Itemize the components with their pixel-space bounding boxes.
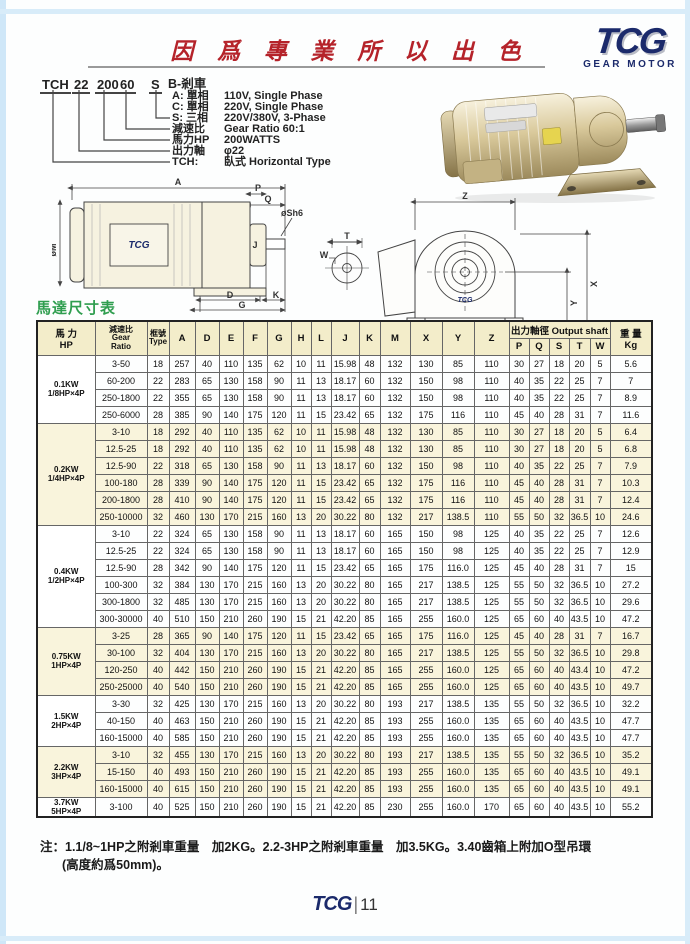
dim-value-cell: 215: [243, 746, 267, 763]
gear-ratio-cell: 40-150: [95, 712, 147, 729]
page-frame-right: [685, 0, 690, 944]
dim-value-cell: 43.4: [569, 661, 590, 678]
hp-group-cell: 0.75KW1HP×4P: [37, 627, 95, 695]
dim-value-cell: 32: [147, 576, 169, 593]
dim-value-cell: 21: [311, 729, 331, 746]
dim-value-cell: 7: [590, 474, 610, 491]
dim-value-cell: 47.7: [610, 729, 652, 746]
dim-value-cell: 60: [529, 729, 549, 746]
dim-value-cell: 110: [474, 355, 509, 372]
dim-value-cell: 10: [590, 610, 610, 627]
dim-value-cell: 217: [410, 576, 442, 593]
dim-value-cell: 50: [529, 576, 549, 593]
dim-value-cell: 116.0: [442, 627, 474, 644]
dim-value-cell: 90: [195, 559, 219, 576]
dim-value-cell: 130: [219, 525, 243, 542]
dim-value-cell: 190: [267, 678, 291, 695]
dim-value-cell: 10: [590, 508, 610, 525]
brand-logo: TCG GEAR MOTOR: [580, 24, 680, 70]
dim-value-cell: 45: [509, 559, 529, 576]
dim-value-cell: 47.2: [610, 610, 652, 627]
dim-value-cell: 150: [410, 542, 442, 559]
dim-value-cell: 20: [569, 355, 590, 372]
dim-value-cell: 15: [291, 712, 311, 729]
dim-value-cell: 165: [380, 542, 410, 559]
gear-ratio-cell: 160-15000: [95, 780, 147, 797]
dim-value-cell: 80: [359, 576, 380, 593]
dim-value-cell: 10: [590, 576, 610, 593]
dim-value-cell: 22: [147, 389, 169, 406]
dim-value-cell: 11: [291, 474, 311, 491]
dim-value-cell: 20: [569, 423, 590, 440]
dim-value-cell: 22: [147, 542, 169, 559]
dim-value-cell: 158: [243, 525, 267, 542]
dim-value-cell: 160.0: [442, 763, 474, 780]
dim-value-cell: 55: [509, 576, 529, 593]
dim-value-cell: 20: [311, 593, 331, 610]
dim-value-cell: 15: [311, 474, 331, 491]
dim-value-cell: 132: [380, 406, 410, 423]
dim-value-cell: 28: [549, 627, 569, 644]
dim-value-cell: 190: [267, 712, 291, 729]
dim-value-cell: 43.5: [569, 610, 590, 627]
spec-row: 12.5-902834290140175120111523.4265165175…: [37, 559, 652, 576]
dim-value-cell: 20: [311, 576, 331, 593]
dim-value-cell: 170: [219, 644, 243, 661]
dim-value-cell: 40: [529, 406, 549, 423]
dim-value-cell: 132: [380, 355, 410, 372]
dim-value-cell: 29.8: [610, 644, 652, 661]
dim-m-label: øM: [52, 244, 58, 257]
dim-value-cell: 60: [529, 610, 549, 627]
dim-value-cell: 15: [291, 661, 311, 678]
dim-value-cell: 85: [442, 440, 474, 457]
dim-value-cell: 10: [291, 423, 311, 440]
spec-row: 160-1500040585150210260190152142.2085193…: [37, 729, 652, 746]
dim-value-cell: 442: [169, 661, 195, 678]
dim-value-cell: 49.1: [610, 780, 652, 797]
dim-value-cell: 65: [509, 678, 529, 695]
spec-row: 0.4KW1/2HP×4P3-10223246513015890111318.1…: [37, 525, 652, 542]
gear-ratio-cell: 300-1800: [95, 593, 147, 610]
dim-d-label: D: [227, 290, 234, 300]
dim-value-cell: 35: [529, 389, 549, 406]
gear-ratio-cell: 3-25: [95, 627, 147, 644]
dim-value-cell: 7: [590, 491, 610, 508]
dim-value-cell: 132: [380, 423, 410, 440]
dim-value-cell: 175: [243, 491, 267, 508]
dim-value-cell: 130: [195, 695, 219, 712]
col-header-output-shaft: 出力軸徑 Output shaft: [509, 321, 610, 338]
dim-value-cell: 120: [267, 406, 291, 423]
dim-value-cell: 50: [529, 593, 549, 610]
dim-value-cell: 11: [311, 355, 331, 372]
header-slogan: 因 爲 專 業 所 以 出 色: [150, 32, 550, 66]
dim-value-cell: 150: [195, 797, 219, 817]
dim-value-cell: 65: [195, 372, 219, 389]
dim-value-cell: 48: [359, 440, 380, 457]
dim-value-cell: 11: [291, 372, 311, 389]
dim-value-cell: 60: [529, 763, 549, 780]
dim-value-cell: 90: [195, 627, 219, 644]
spec-row: 300-3000040510150210260190152142.2085165…: [37, 610, 652, 627]
dim-value-cell: 455: [169, 746, 195, 763]
col-header-e: E: [219, 321, 243, 355]
spec-row: 30-10032404130170215160132030.2280165217…: [37, 644, 652, 661]
dim-value-cell: 170: [219, 508, 243, 525]
dim-value-cell: 40: [509, 525, 529, 542]
dim-value-cell: 62: [267, 355, 291, 372]
dim-value-cell: 85: [359, 712, 380, 729]
dim-value-cell: 260: [243, 712, 267, 729]
spec-row: 250-1000032460130170215160132030.2280132…: [37, 508, 652, 525]
footnote-line2: (高度約爲50mm)。: [62, 854, 169, 873]
dim-value-cell: 165: [380, 559, 410, 576]
dim-value-cell: 116.0: [442, 559, 474, 576]
dim-value-cell: 40: [549, 763, 569, 780]
dim-value-cell: 85: [359, 610, 380, 627]
dim-value-cell: 31: [569, 474, 590, 491]
dim-value-cell: 132: [380, 389, 410, 406]
dim-value-cell: 110: [474, 491, 509, 508]
dim-value-cell: 140: [219, 474, 243, 491]
dim-j-label: J: [252, 240, 257, 250]
dim-value-cell: 130: [219, 542, 243, 559]
gear-ratio-cell: 100-300: [95, 576, 147, 593]
dim-value-cell: 23.42: [331, 491, 359, 508]
dim-value-cell: 40: [529, 474, 549, 491]
dim-z-label: Z: [462, 191, 468, 201]
dim-value-cell: 28: [147, 474, 169, 491]
dim-value-cell: 30: [509, 355, 529, 372]
dim-value-cell: 43.5: [569, 729, 590, 746]
dim-value-cell: 110: [474, 372, 509, 389]
dim-value-cell: 170: [219, 593, 243, 610]
dim-value-cell: 90: [195, 491, 219, 508]
dim-value-cell: 18: [147, 440, 169, 457]
dim-value-cell: 49.1: [610, 763, 652, 780]
dim-value-cell: 40: [509, 542, 529, 559]
dim-value-cell: 60: [359, 457, 380, 474]
dim-value-cell: 35.2: [610, 746, 652, 763]
dim-value-cell: 32: [147, 695, 169, 712]
dim-value-cell: 60: [529, 678, 549, 695]
dim-value-cell: 50: [529, 644, 549, 661]
front-view-brand: TCG: [458, 297, 473, 304]
dim-value-cell: 48: [359, 423, 380, 440]
dim-value-cell: 28: [549, 491, 569, 508]
dim-value-cell: 15.98: [331, 440, 359, 457]
dim-value-cell: 110: [474, 474, 509, 491]
dim-value-cell: 55: [509, 508, 529, 525]
dim-value-cell: 5: [590, 423, 610, 440]
dim-value-cell: 135: [474, 729, 509, 746]
spec-row: 40-15040463150210260190152142.2085193255…: [37, 712, 652, 729]
dim-value-cell: 160: [267, 593, 291, 610]
dim-value-cell: 138.5: [442, 644, 474, 661]
spec-row: 3.7KW5HP×4P3-10040525150210260190152142.…: [37, 797, 652, 817]
dim-value-cell: 10: [590, 763, 610, 780]
dim-value-cell: 42.20: [331, 797, 359, 817]
dim-value-cell: 98: [442, 372, 474, 389]
dim-value-cell: 25: [569, 542, 590, 559]
dim-y-label: Y: [569, 300, 579, 306]
dim-value-cell: 10: [291, 440, 311, 457]
dim-value-cell: 160.0: [442, 661, 474, 678]
dim-value-cell: 11: [291, 627, 311, 644]
dim-value-cell: 25: [569, 372, 590, 389]
hp-group-cell: 0.1KW1/8HP×4P: [37, 355, 95, 423]
page-footer: TCG|11: [0, 893, 690, 916]
dim-value-cell: 160: [267, 746, 291, 763]
dim-value-cell: 30.22: [331, 576, 359, 593]
dim-value-cell: 40: [549, 610, 569, 627]
dim-value-cell: 175: [410, 474, 442, 491]
dim-value-cell: 15: [311, 406, 331, 423]
dim-value-cell: 125: [474, 593, 509, 610]
dim-t-label: T: [344, 231, 350, 241]
dim-value-cell: 230: [380, 797, 410, 817]
dim-value-cell: 132: [380, 508, 410, 525]
dim-value-cell: 85: [359, 780, 380, 797]
dim-value-cell: 21: [311, 763, 331, 780]
gear-ratio-cell: 60-200: [95, 372, 147, 389]
table-title: 馬達尺寸表: [36, 297, 116, 318]
dim-value-cell: 130: [195, 746, 219, 763]
dim-value-cell: 193: [380, 695, 410, 712]
dim-value-cell: 13: [311, 389, 331, 406]
dim-value-cell: 28: [549, 474, 569, 491]
dim-value-cell: 6.4: [610, 423, 652, 440]
dim-value-cell: 160.0: [442, 797, 474, 817]
dim-value-cell: 410: [169, 491, 195, 508]
dim-value-cell: 55: [509, 593, 529, 610]
dim-value-cell: 30.22: [331, 695, 359, 712]
code-option-label: TCH:: [172, 156, 198, 168]
dim-value-cell: 27: [529, 440, 549, 457]
spec-row: 0.75KW1HP×4P3-252836590140175120111523.4…: [37, 627, 652, 644]
dim-g-label: G: [238, 300, 245, 310]
dim-value-cell: 125: [474, 576, 509, 593]
dim-value-cell: 27.2: [610, 576, 652, 593]
dim-value-cell: 10: [291, 355, 311, 372]
spec-row: 0.2KW1/4HP×4P3-10182924011013562101115.9…: [37, 423, 652, 440]
col-header-h: H: [291, 321, 311, 355]
dim-value-cell: 65: [509, 797, 529, 817]
dim-value-cell: 130: [410, 440, 442, 457]
dim-value-cell: 150: [195, 729, 219, 746]
dim-value-cell: 31: [569, 406, 590, 423]
dim-value-cell: 8.9: [610, 389, 652, 406]
dim-value-cell: 60: [359, 542, 380, 559]
gear-ratio-cell: 3-30: [95, 695, 147, 712]
dim-value-cell: 22: [549, 372, 569, 389]
dim-value-cell: 342: [169, 559, 195, 576]
dim-value-cell: 21: [311, 780, 331, 797]
dim-value-cell: 18.17: [331, 457, 359, 474]
dim-value-cell: 540: [169, 678, 195, 695]
dim-value-cell: 116: [442, 406, 474, 423]
dim-value-cell: 42.20: [331, 780, 359, 797]
dim-value-cell: 165: [380, 576, 410, 593]
dim-value-cell: 90: [267, 542, 291, 559]
dim-value-cell: 55.2: [610, 797, 652, 817]
dim-value-cell: 158: [243, 372, 267, 389]
dim-value-cell: 32: [549, 695, 569, 712]
dim-value-cell: 10: [590, 746, 610, 763]
dim-value-cell: 11: [291, 542, 311, 559]
dim-value-cell: 23.42: [331, 474, 359, 491]
dim-value-cell: 130: [219, 372, 243, 389]
product-photo: [425, 72, 683, 204]
gear-ratio-cell: 12.5-90: [95, 559, 147, 576]
dim-value-cell: 65: [195, 457, 219, 474]
dim-value-cell: 130: [195, 576, 219, 593]
dim-value-cell: 18: [147, 423, 169, 440]
dim-value-cell: 110: [474, 440, 509, 457]
dim-value-cell: 120: [267, 491, 291, 508]
gear-ratio-cell: 3-100: [95, 797, 147, 817]
dim-value-cell: 98: [442, 389, 474, 406]
gear-ratio-cell: 250-1800: [95, 389, 147, 406]
dim-value-cell: 150: [195, 712, 219, 729]
dim-value-cell: 32: [549, 576, 569, 593]
dim-value-cell: 65: [195, 525, 219, 542]
dim-value-cell: 170: [219, 746, 243, 763]
dim-value-cell: 160.0: [442, 610, 474, 627]
code-option-value: 臥式 Horizontal Type: [224, 156, 331, 168]
page-frame-bottom: [0, 936, 690, 941]
dim-value-cell: 60: [359, 389, 380, 406]
dim-value-cell: 193: [380, 746, 410, 763]
dim-value-cell: 165: [380, 644, 410, 661]
dim-value-cell: 31: [569, 559, 590, 576]
dim-value-cell: 32: [549, 746, 569, 763]
dim-value-cell: 5: [590, 440, 610, 457]
dim-value-cell: 31: [569, 491, 590, 508]
dim-value-cell: 7: [590, 372, 610, 389]
gear-ratio-cell: 3-50: [95, 355, 147, 372]
dim-value-cell: 28: [147, 491, 169, 508]
dim-value-cell: 60: [529, 780, 549, 797]
dim-value-cell: 7: [590, 542, 610, 559]
dim-value-cell: 65: [195, 542, 219, 559]
dim-value-cell: 42.20: [331, 610, 359, 627]
dim-value-cell: 27: [529, 423, 549, 440]
dim-value-cell: 193: [380, 780, 410, 797]
dim-value-cell: 365: [169, 627, 195, 644]
gear-ratio-cell: 12.5-90: [95, 457, 147, 474]
dim-value-cell: 35: [529, 457, 549, 474]
dim-value-cell: 175: [243, 474, 267, 491]
dim-value-cell: 55: [509, 746, 529, 763]
spec-row: 250-1800223556513015890111318.1760132150…: [37, 389, 652, 406]
dim-value-cell: 25: [569, 389, 590, 406]
dim-value-cell: 43.5: [569, 712, 590, 729]
dim-value-cell: 215: [243, 576, 267, 593]
dim-value-cell: 48: [359, 355, 380, 372]
col-header-l: L: [311, 321, 331, 355]
dim-value-cell: 217: [410, 508, 442, 525]
dim-value-cell: 175: [243, 406, 267, 423]
dim-value-cell: 65: [195, 389, 219, 406]
dim-value-cell: 116: [442, 474, 474, 491]
dim-value-cell: 18.17: [331, 389, 359, 406]
dim-value-cell: 40: [147, 610, 169, 627]
dim-value-cell: 11: [291, 525, 311, 542]
dim-value-cell: 110: [219, 440, 243, 457]
dim-value-cell: 165: [380, 610, 410, 627]
dim-value-cell: 255: [410, 610, 442, 627]
dim-value-cell: 15: [610, 559, 652, 576]
dim-value-cell: 40: [147, 729, 169, 746]
dim-value-cell: 11: [291, 457, 311, 474]
dim-value-cell: 60: [529, 797, 549, 817]
dim-value-cell: 40: [509, 457, 529, 474]
dim-value-cell: 130: [195, 593, 219, 610]
dim-value-cell: 60: [359, 525, 380, 542]
brand-logo-text: TCG: [578, 24, 682, 58]
dim-value-cell: 210: [219, 712, 243, 729]
spec-row: 2.2KW3HP×4P3-1032455130170215160132030.2…: [37, 746, 652, 763]
dim-value-cell: 18.17: [331, 542, 359, 559]
dim-value-cell: 215: [243, 644, 267, 661]
dim-value-cell: 193: [380, 729, 410, 746]
dim-value-cell: 210: [219, 610, 243, 627]
dim-value-cell: 485: [169, 593, 195, 610]
dim-value-cell: 13: [291, 508, 311, 525]
dim-value-cell: 22: [147, 372, 169, 389]
dim-value-cell: 175: [243, 559, 267, 576]
dim-value-cell: 23.42: [331, 559, 359, 576]
dim-value-cell: 50: [529, 695, 549, 712]
dim-value-cell: 125: [474, 559, 509, 576]
dim-value-cell: 65: [509, 780, 529, 797]
page-frame-left: [0, 0, 6, 944]
footer-page-number: 11: [360, 895, 378, 914]
dim-value-cell: 175: [410, 559, 442, 576]
col-header-weight: 重 量Kg: [610, 321, 652, 355]
dim-value-cell: 12.9: [610, 542, 652, 559]
dim-value-cell: 40: [195, 440, 219, 457]
dim-value-cell: 18: [549, 440, 569, 457]
dim-value-cell: 18: [549, 355, 569, 372]
dim-value-cell: 30.22: [331, 593, 359, 610]
col-header-p: P: [509, 338, 529, 355]
col-header-type: 框號Type: [147, 321, 169, 355]
dim-value-cell: 22: [147, 457, 169, 474]
dim-value-cell: 7: [590, 406, 610, 423]
dim-value-cell: 90: [267, 457, 291, 474]
dim-value-cell: 40: [147, 797, 169, 817]
dim-value-cell: 65: [359, 474, 380, 491]
dim-value-cell: 65: [509, 661, 529, 678]
dim-value-cell: 210: [219, 797, 243, 817]
dim-value-cell: 385: [169, 406, 195, 423]
dim-value-cell: 90: [267, 389, 291, 406]
dim-value-cell: 13: [311, 457, 331, 474]
gear-ratio-cell: 300-30000: [95, 610, 147, 627]
dim-value-cell: 158: [243, 457, 267, 474]
col-header-y: Y: [442, 321, 474, 355]
dim-value-cell: 10: [590, 797, 610, 817]
col-header-m: M: [380, 321, 410, 355]
dim-value-cell: 260: [243, 780, 267, 797]
dim-value-cell: 40: [549, 661, 569, 678]
spec-row: 12.5-25223246513015890111318.17601651509…: [37, 542, 652, 559]
dim-value-cell: 65: [359, 559, 380, 576]
col-header-j: J: [331, 321, 359, 355]
